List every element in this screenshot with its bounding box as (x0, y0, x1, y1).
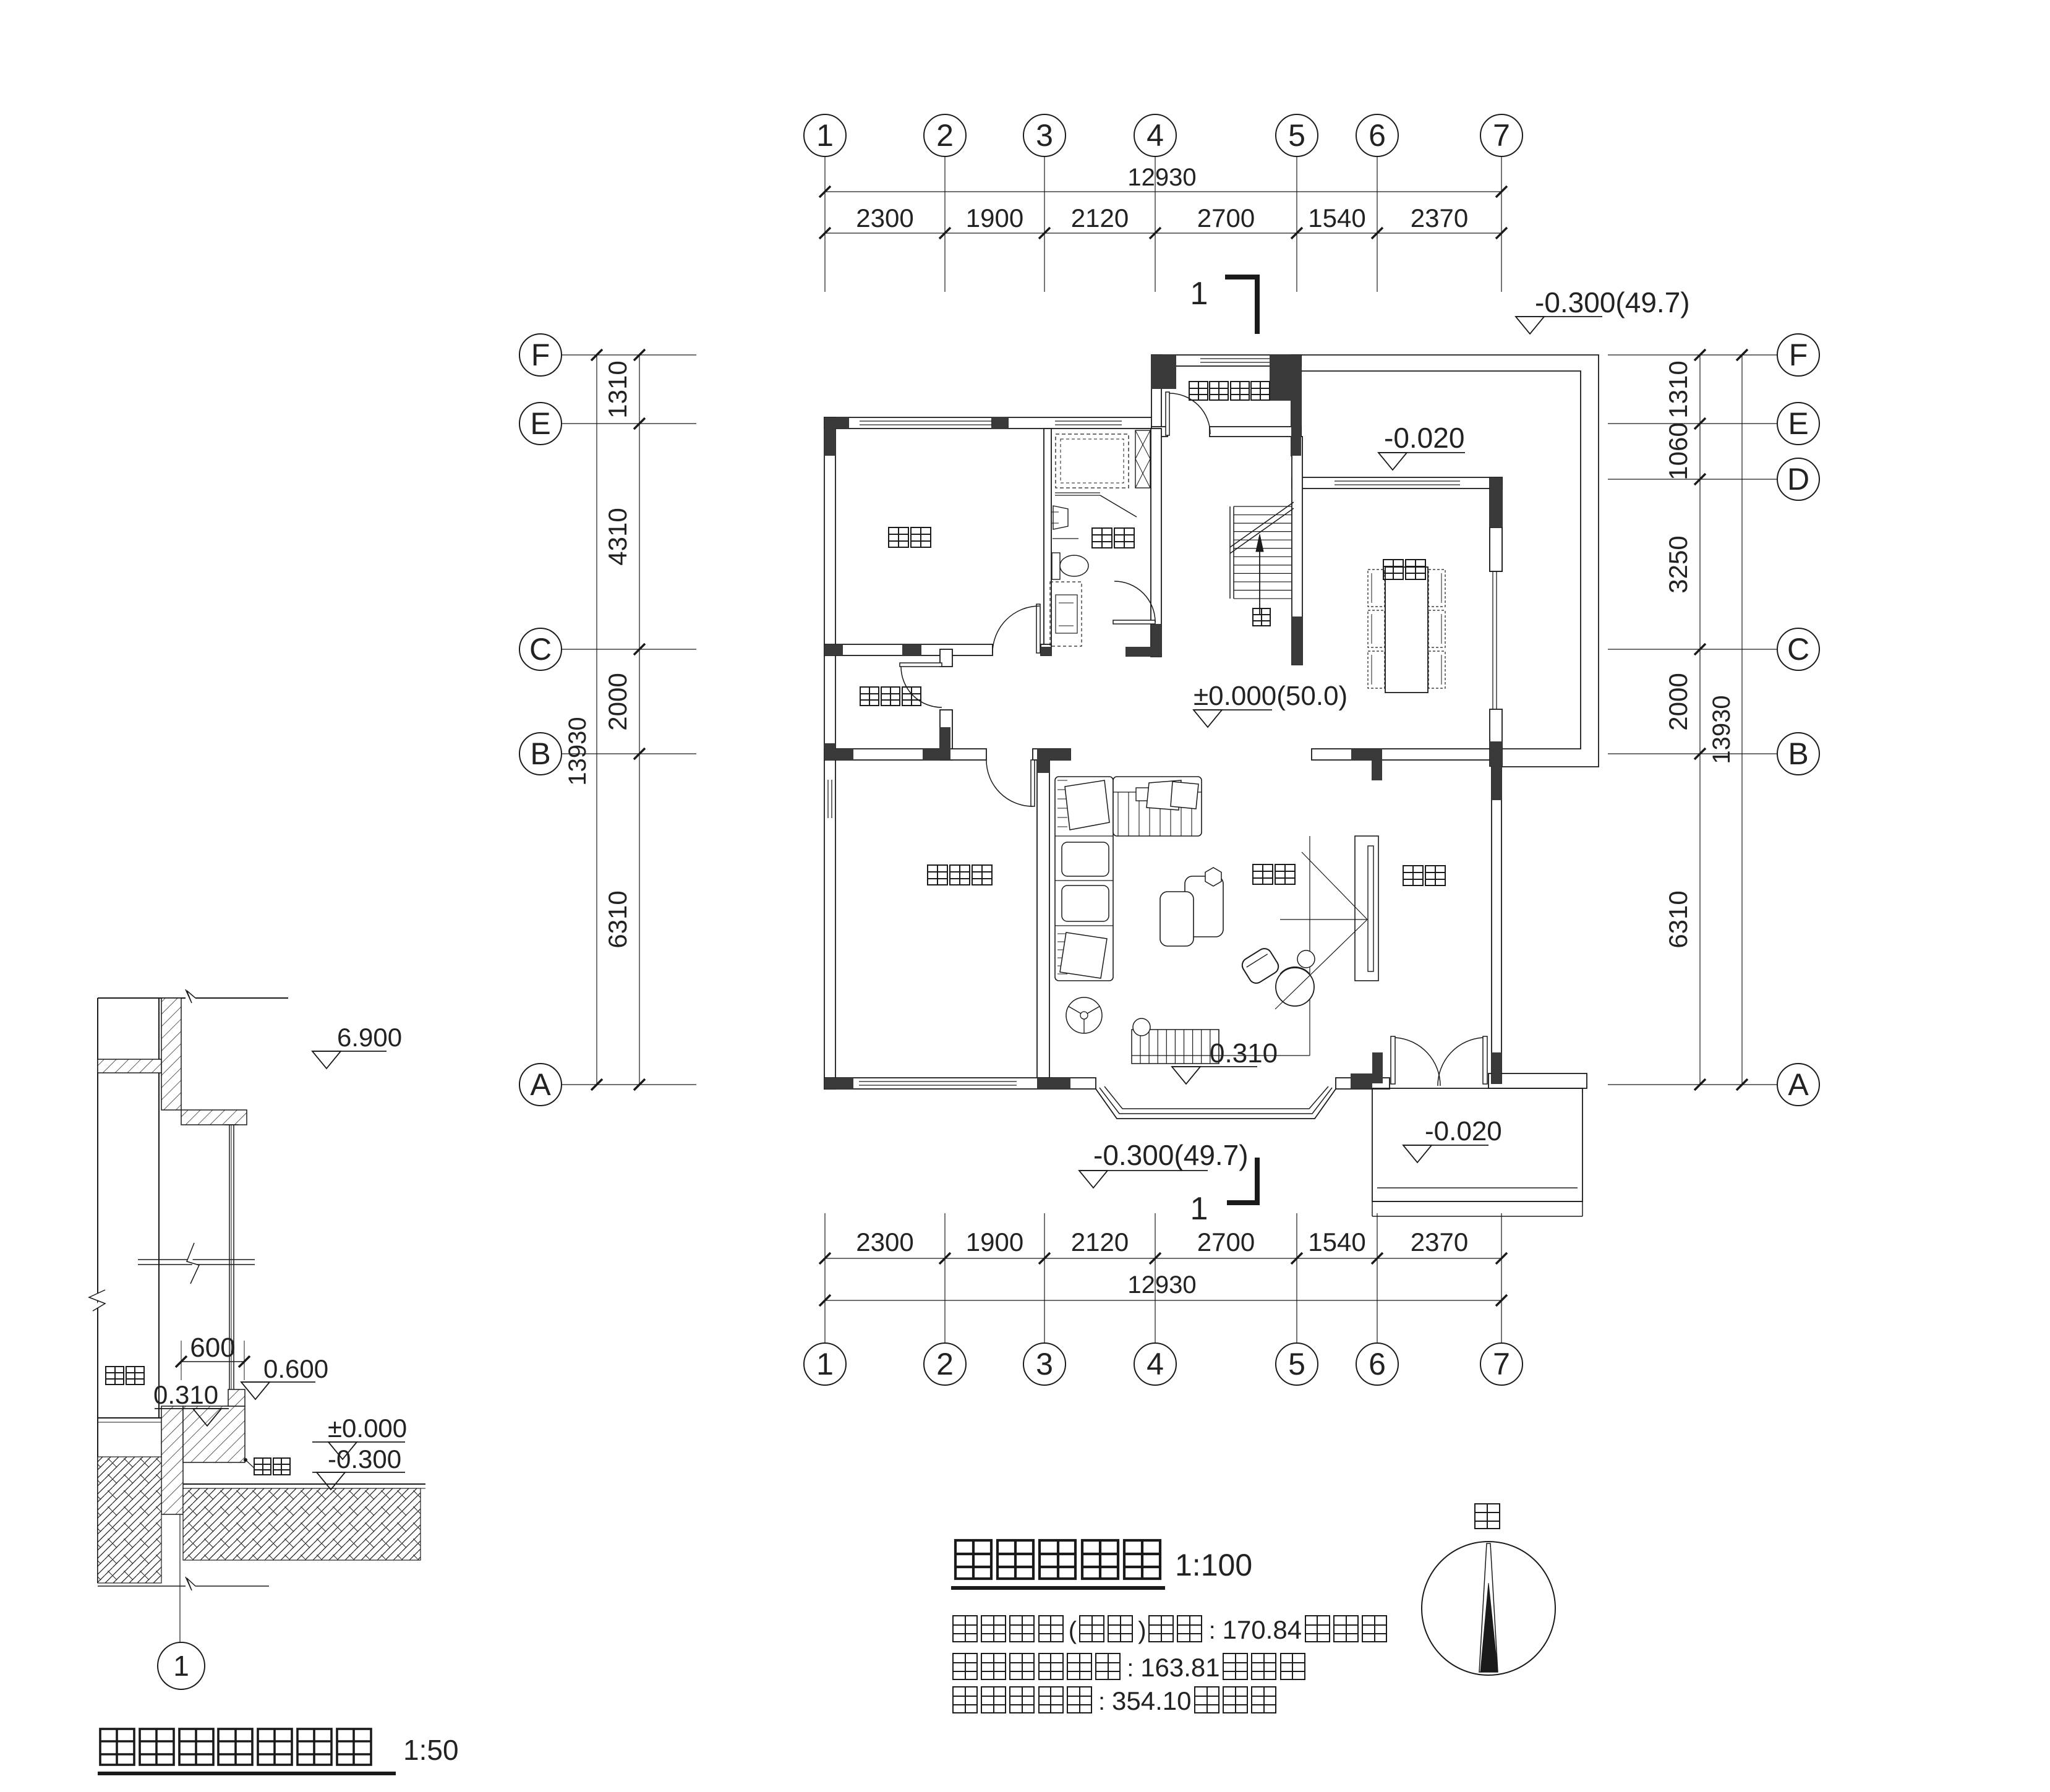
svg-text::: : (1098, 1688, 1105, 1715)
svg-text:1:100: 1:100 (1175, 1548, 1252, 1582)
svg-text:170.84: 170.84 (1223, 1615, 1302, 1644)
svg-text:-0.020: -0.020 (1384, 422, 1464, 454)
svg-text:13930: 13930 (564, 717, 591, 785)
svg-text:5: 5 (1288, 1347, 1305, 1381)
svg-text:12930: 12930 (1127, 1271, 1196, 1299)
svg-text:C: C (1787, 632, 1809, 667)
svg-text:0.310: 0.310 (153, 1380, 218, 1409)
svg-text:±0.000: ±0.000 (328, 1414, 407, 1443)
svg-text:6310: 6310 (603, 890, 632, 948)
svg-text:1540: 1540 (1308, 203, 1365, 233)
svg-text:1900: 1900 (966, 203, 1023, 233)
svg-text:2300: 2300 (856, 1227, 913, 1257)
svg-text:B: B (1788, 736, 1808, 771)
svg-text:0.310: 0.310 (1210, 1038, 1278, 1069)
svg-text:1540: 1540 (1308, 1227, 1365, 1257)
svg-text:3: 3 (1036, 1347, 1053, 1381)
svg-text:1: 1 (1190, 276, 1208, 312)
svg-text:12930: 12930 (1127, 164, 1196, 191)
svg-text:2120: 2120 (1071, 1227, 1129, 1257)
svg-text:1: 1 (816, 118, 834, 153)
svg-text:F: F (531, 338, 550, 372)
svg-text:2370: 2370 (1411, 1227, 1468, 1257)
svg-text:6.900: 6.900 (337, 1023, 402, 1052)
svg-text:6: 6 (1369, 1347, 1386, 1381)
svg-text:E: E (530, 406, 550, 441)
svg-text:1: 1 (173, 1650, 189, 1682)
svg-text:E: E (1788, 406, 1808, 441)
svg-text:600: 600 (190, 1333, 235, 1363)
svg-text:±0.000(50.0): ±0.000(50.0) (1194, 681, 1347, 711)
svg-text:B: B (530, 736, 550, 771)
svg-text:163.81: 163.81 (1140, 1653, 1219, 1682)
svg-text:2300: 2300 (856, 203, 913, 233)
svg-text:1060: 1060 (1663, 422, 1693, 480)
svg-text:4: 4 (1147, 118, 1164, 153)
svg-text:2700: 2700 (1197, 1227, 1255, 1257)
svg-text:3250: 3250 (1663, 535, 1693, 593)
svg-text:5: 5 (1288, 118, 1305, 153)
svg-text:2700: 2700 (1197, 203, 1255, 233)
svg-text:1:50: 1:50 (403, 1734, 459, 1766)
svg-text:C: C (529, 632, 552, 667)
svg-text:4310: 4310 (603, 508, 632, 565)
svg-text:2: 2 (936, 1347, 954, 1381)
svg-text::: : (1209, 1617, 1216, 1644)
svg-text::: : (1127, 1655, 1134, 1682)
svg-text:A: A (1788, 1067, 1809, 1102)
svg-text:F: F (1789, 338, 1808, 372)
svg-text:0.600: 0.600 (263, 1354, 328, 1383)
svg-text:354.10: 354.10 (1112, 1686, 1191, 1715)
svg-text:2: 2 (936, 118, 954, 153)
svg-text:1: 1 (1190, 1191, 1208, 1227)
svg-text:(: ( (1069, 1617, 1077, 1644)
svg-text:-0.300: -0.300 (328, 1444, 401, 1474)
svg-text:-0.300(49.7): -0.300(49.7) (1535, 286, 1690, 318)
svg-text:7: 7 (1493, 118, 1510, 153)
svg-text:1900: 1900 (966, 1227, 1023, 1257)
svg-text:4: 4 (1147, 1347, 1164, 1381)
svg-text:7: 7 (1493, 1347, 1510, 1381)
svg-text:6: 6 (1369, 118, 1386, 153)
svg-text:-0.020: -0.020 (1425, 1116, 1502, 1146)
svg-text:6310: 6310 (1663, 890, 1693, 948)
svg-text:1310: 1310 (1663, 361, 1693, 418)
svg-text:2120: 2120 (1071, 203, 1129, 233)
svg-text:1310: 1310 (603, 361, 632, 418)
svg-text:3: 3 (1036, 118, 1053, 153)
svg-text:A: A (530, 1067, 551, 1102)
svg-text:2000: 2000 (603, 673, 632, 730)
svg-text:2000: 2000 (1663, 673, 1693, 730)
svg-text:-0.300(49.7): -0.300(49.7) (1093, 1139, 1249, 1171)
svg-text:): ) (1138, 1617, 1146, 1644)
svg-text:13930: 13930 (1708, 695, 1735, 764)
svg-text:1: 1 (816, 1347, 834, 1381)
svg-text:D: D (1787, 462, 1809, 497)
svg-text:2370: 2370 (1411, 203, 1468, 233)
